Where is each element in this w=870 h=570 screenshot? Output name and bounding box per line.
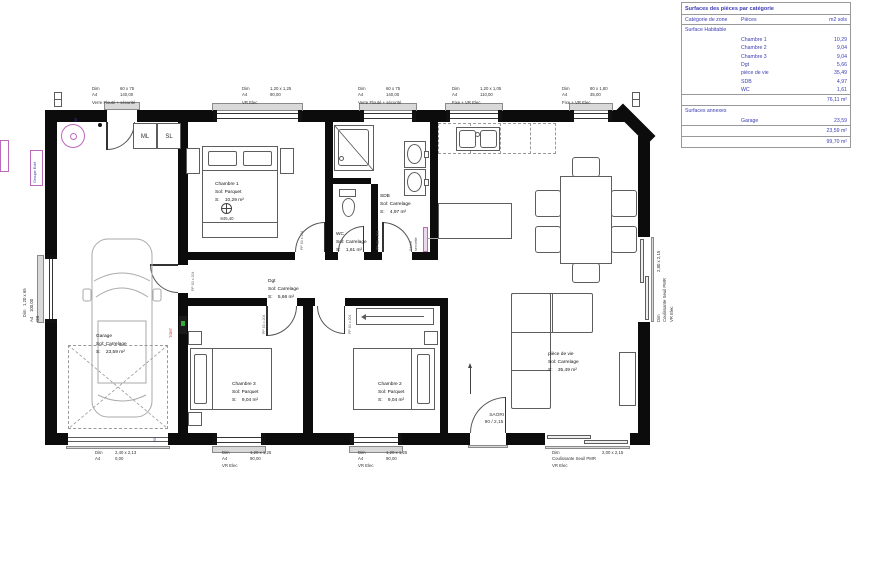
section-annexes: Surfaces annexes bbox=[682, 106, 850, 116]
chair bbox=[572, 157, 600, 177]
sdb-window-glazing bbox=[362, 113, 414, 119]
washing-machine-label: ML bbox=[141, 134, 149, 140]
chair bbox=[535, 190, 561, 217]
wall-dgt-south-2 bbox=[297, 298, 315, 306]
col-zone: Catégorie de zone bbox=[685, 17, 741, 23]
chambre1-label: Chambre 1Sol: ParquetS: 10,29 m² bbox=[215, 166, 244, 204]
section-habitable: Surface Habitable bbox=[682, 25, 850, 35]
living-window-glazing bbox=[572, 113, 610, 119]
entry-door-gap bbox=[470, 433, 506, 445]
wall-dgt-north-3 bbox=[364, 252, 382, 260]
table-row: SDB4,97 bbox=[682, 77, 850, 85]
pillow bbox=[417, 354, 430, 404]
shower-drain bbox=[339, 156, 344, 161]
pillow bbox=[243, 151, 272, 166]
wall-chambre1-east bbox=[325, 122, 333, 252]
dim-label-chambre3-window: Dim1,20 x 1,25 A490,00 VR Elec bbox=[222, 450, 271, 469]
door-size-tag: PP 83 x 204 bbox=[300, 230, 305, 250]
subtotal-habitable: 76,11 m² bbox=[682, 94, 850, 106]
window-cap bbox=[45, 255, 57, 259]
nightstand bbox=[280, 148, 294, 174]
sink-faucet bbox=[424, 179, 429, 186]
wall-dim-20: 20 bbox=[153, 438, 159, 442]
kitchen-window-glazing bbox=[448, 113, 500, 119]
kitchen-counter-divider bbox=[530, 123, 531, 154]
toilet-tank bbox=[339, 189, 356, 197]
chair bbox=[611, 190, 637, 217]
surfaces-table: Surfaces des pièces par catégorie Catégo… bbox=[681, 2, 851, 148]
table-row: Chambre 110,29 bbox=[682, 36, 850, 44]
kitchen-island bbox=[438, 203, 512, 239]
dim-label-garage-entry: Dim60 x 75 A4140,00 Verre Flouté + sécur… bbox=[92, 86, 135, 107]
bed-line bbox=[411, 348, 412, 410]
wall-dgt-south-1 bbox=[188, 298, 267, 306]
chambre2-window-glazing bbox=[352, 437, 400, 443]
dgt-label: DgtSol: CarrelageS: 5,66 m² bbox=[268, 263, 299, 301]
window-cap bbox=[398, 433, 402, 445]
table-row: pièce de vie35,49 bbox=[682, 69, 850, 77]
window-cap bbox=[213, 110, 217, 122]
sdb-door-leaf bbox=[382, 222, 384, 252]
margin-annotation-box bbox=[0, 140, 9, 172]
dim-label-bottom-slider: Dim2,00 x 2,15 Coulissante Seuil PMR VR … bbox=[552, 450, 623, 469]
slider-panel bbox=[584, 440, 628, 444]
slider-panel bbox=[645, 276, 649, 320]
surfaces-table-header: Catégorie de zone Pièces m2 sols bbox=[682, 15, 850, 25]
door-size-tag: PP 83 x 204 bbox=[348, 314, 353, 334]
surfaces-table-title: Surfaces des pièces par catégorie bbox=[682, 3, 850, 15]
electrical-panel-led bbox=[181, 321, 185, 326]
window-cap bbox=[608, 110, 612, 122]
col-area: m2 sols bbox=[805, 17, 847, 23]
chambre2-door-leaf bbox=[344, 306, 346, 334]
slider-panel bbox=[640, 239, 644, 283]
sdb-door-arc bbox=[382, 222, 412, 252]
exterior-unit-label: Groupe Exté bbox=[33, 162, 39, 183]
entry-name: SAORI bbox=[489, 413, 504, 418]
entry-arrow-line bbox=[470, 368, 471, 394]
wall-bath-east bbox=[430, 122, 438, 252]
garage-label: GarageSol: CarrelageS: 23,59 m² bbox=[96, 318, 127, 356]
chambre3-window-glazing bbox=[215, 437, 263, 443]
sofa-cushion-line bbox=[511, 370, 551, 371]
chambre1-window-glazing bbox=[215, 113, 300, 119]
wall-dim-20: 20 bbox=[74, 118, 80, 122]
door-size-tag: PP 83 x 204 bbox=[262, 314, 267, 334]
washing-machine: ML bbox=[133, 123, 157, 149]
dim-label-kitchen-window: Dim1,20 x 1,05 A4110,00 Fixe + VR Elec bbox=[452, 86, 501, 107]
slider-panel bbox=[547, 435, 591, 439]
electrical-panel-label: TGBT bbox=[169, 328, 175, 338]
sofa-cushion-line bbox=[511, 332, 551, 333]
wall-chambre-partition bbox=[303, 306, 313, 433]
right-slider-sill bbox=[651, 237, 654, 322]
window-cap bbox=[350, 433, 354, 445]
wall-shower-south bbox=[333, 178, 371, 184]
door-size-tag: PP 83 x 204 bbox=[376, 230, 381, 250]
kitchen-faucet bbox=[475, 132, 480, 137]
window-cap bbox=[45, 319, 57, 323]
floor-plan-page: ML SL TGBT Sèche serviette bbox=[0, 0, 870, 570]
nightstand bbox=[424, 331, 438, 345]
table-row: WC1,61 bbox=[682, 86, 850, 94]
pillow bbox=[194, 354, 207, 404]
wall-garage-b bbox=[178, 293, 188, 433]
towel-radiator-label: Sèche serviette bbox=[409, 237, 420, 251]
piece-de-vie-label: pièce de vieSol: CarrelageS: 35,49 m² bbox=[548, 336, 579, 374]
section-marker-line bbox=[632, 99, 640, 100]
entry-arrow-head bbox=[468, 363, 472, 368]
chair bbox=[535, 226, 561, 253]
sink-basin bbox=[407, 144, 422, 164]
bed-line bbox=[212, 348, 213, 410]
dryer-label: SL bbox=[165, 134, 172, 140]
dim-label-sdb-window: Dim60 x 75 A4140,00 Verre Flouté + sécur… bbox=[358, 86, 401, 107]
nightstand bbox=[188, 412, 202, 426]
door-size-tag: PP 83 x 204 bbox=[191, 271, 196, 291]
wall-dgt-south-3 bbox=[345, 298, 448, 306]
window-cap bbox=[446, 110, 450, 122]
garage-entry-gap bbox=[107, 110, 137, 122]
window-cap bbox=[261, 433, 265, 445]
water-heater-center bbox=[70, 133, 77, 140]
dim-label-chambre2-window: Dim1,20 x 1,25 A490,00 VR Elec bbox=[358, 450, 407, 469]
wc-label: WCSol: CarrelageS: 1,61 m² bbox=[336, 216, 367, 254]
total-row: 99,70 m² bbox=[682, 137, 850, 147]
sdb-label: SDBSol: CarrelageS: 4,97 m² bbox=[380, 178, 411, 216]
chambre2-label: Chambre 2Sol: ParquetS: 9,04 m² bbox=[378, 366, 404, 404]
chambre2-door-arc bbox=[317, 306, 345, 334]
shower-diagonal bbox=[334, 125, 374, 171]
garage-zone-cross bbox=[68, 345, 168, 429]
window-cap bbox=[360, 110, 364, 122]
sink-faucet bbox=[424, 151, 429, 158]
sofa-left-arm bbox=[511, 293, 551, 409]
kitchen-sink-basin bbox=[459, 130, 476, 148]
dim-label-right-slider: Dim2,80 x 2,15 Coulissante Seuil PMR VR … bbox=[656, 251, 675, 322]
leader-line bbox=[428, 238, 438, 239]
entry-door-sill bbox=[468, 445, 508, 448]
bottom-slider-sill bbox=[545, 446, 630, 449]
chambre3-label: Chambre 3Sol: ParquetS: 9,04 m² bbox=[232, 366, 258, 404]
dim-label-garage-door: Dim2,40 x 2,13 A40,00 bbox=[95, 450, 136, 463]
table-row: Chambre 29,04 bbox=[682, 44, 850, 52]
wardrobe-arrow-head bbox=[361, 314, 366, 320]
table-row: Garage23,59 bbox=[682, 117, 850, 126]
section-marker-line bbox=[54, 99, 62, 100]
kitchen-counter-divider bbox=[500, 123, 501, 154]
chair bbox=[572, 263, 600, 283]
garage-side-window-glazing bbox=[49, 258, 53, 320]
garage-door-sill bbox=[66, 446, 170, 449]
window-cap bbox=[298, 110, 302, 122]
entry-size: 90 / 2,15 bbox=[485, 420, 504, 425]
towel-radiator bbox=[423, 227, 428, 252]
window-cap bbox=[498, 110, 502, 122]
col-rooms: Pièces bbox=[741, 17, 805, 23]
dryer: SL bbox=[157, 123, 181, 149]
chambre1-door-leaf bbox=[324, 222, 326, 252]
wardrobe-arrow-line bbox=[366, 316, 424, 317]
dim-label-left-window: Dim 1,20 x 65 A4 100,00 OB bbox=[16, 288, 42, 322]
window-cap bbox=[570, 110, 574, 122]
nightstand bbox=[186, 148, 200, 174]
wall-dgt-north-1 bbox=[188, 252, 295, 260]
window-cap bbox=[412, 110, 416, 122]
level-value: 845,40 bbox=[208, 216, 246, 222]
toilet-bowl bbox=[342, 198, 355, 217]
sofa-cushion-line bbox=[552, 293, 553, 333]
chair bbox=[611, 226, 637, 253]
nightstand bbox=[188, 331, 202, 345]
tv-stand bbox=[619, 352, 636, 406]
garage-entry-door-leaf bbox=[106, 122, 108, 150]
smoke-detector-dot bbox=[98, 123, 102, 127]
subtotal-annexes: 23,59 m² bbox=[682, 126, 850, 137]
entry-door-label: SAORI 90 / 2,15 bbox=[472, 405, 516, 427]
level-marker-cross bbox=[221, 208, 232, 209]
pillow bbox=[208, 151, 237, 166]
dining-table bbox=[560, 176, 612, 264]
window-cap bbox=[213, 433, 217, 445]
table-row: Chambre 39,04 bbox=[682, 52, 850, 60]
kitchen-sink-basin bbox=[480, 130, 497, 148]
wall-chambre2-east bbox=[440, 306, 448, 433]
dim-label-chambre1-window: Dim1,20 x 1,25 A490,00 VR Elec bbox=[242, 86, 291, 107]
chambre3-door-arc bbox=[267, 306, 297, 336]
wall-dgt-north-4 bbox=[412, 252, 438, 260]
garage-entry-door-arc bbox=[107, 122, 135, 150]
dim-label-living-window: Dim80 x 1,80 A435,00 Fixe + VR Elec bbox=[562, 86, 608, 107]
table-row: Dgt5,66 bbox=[682, 61, 850, 69]
